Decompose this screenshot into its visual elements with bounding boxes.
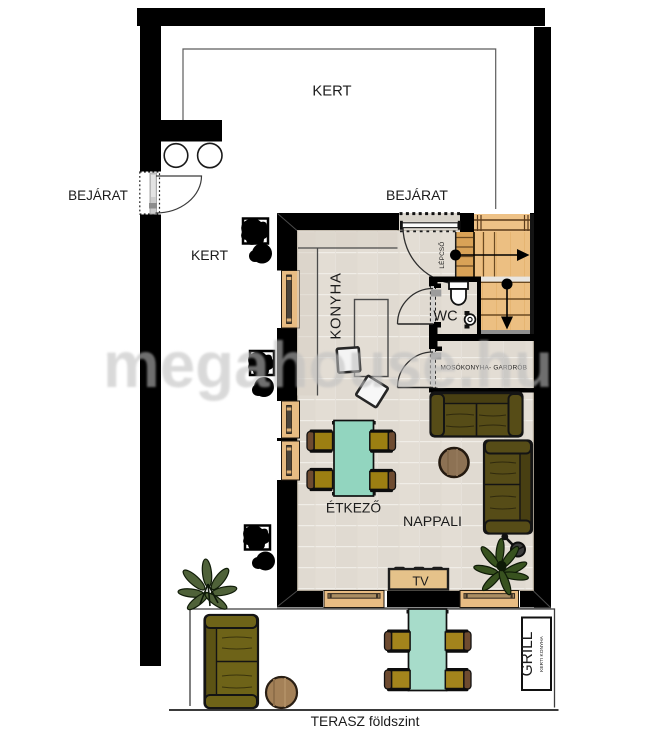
svg-text:megahouse.hu: megahouse.hu bbox=[103, 328, 553, 401]
svg-text:KERT: KERT bbox=[191, 247, 229, 263]
svg-text:NAPPALI: NAPPALI bbox=[403, 514, 462, 530]
svg-text:TV: TV bbox=[412, 574, 429, 589]
svg-text:TERASZ földszint: TERASZ földszint bbox=[311, 714, 420, 729]
svg-text:BEJÁRAT: BEJÁRAT bbox=[68, 188, 128, 203]
svg-text:WC: WC bbox=[433, 309, 457, 325]
svg-text:KERT: KERT bbox=[312, 84, 351, 100]
svg-text:KERTI KONYHA: KERTI KONYHA bbox=[539, 635, 545, 671]
svg-text:ÉTKEZŐ: ÉTKEZŐ bbox=[326, 500, 381, 516]
svg-text:GRILL: GRILL bbox=[519, 631, 536, 676]
svg-text:BEJÁRAT: BEJÁRAT bbox=[386, 187, 448, 203]
svg-text:LÉPCSŐ: LÉPCSŐ bbox=[437, 241, 446, 268]
